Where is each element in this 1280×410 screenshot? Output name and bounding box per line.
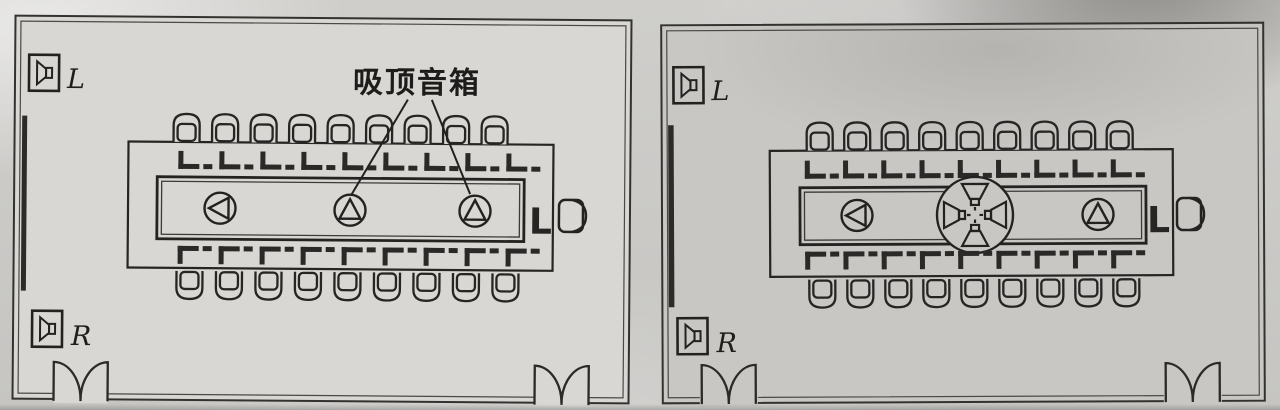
chair-icon	[289, 115, 315, 143]
ceiling-speaker-icon	[841, 200, 872, 231]
chair-icon	[212, 114, 238, 142]
chair-icon	[216, 271, 242, 299]
chair-icon	[413, 273, 439, 301]
ceiling-speaker-icon	[1082, 199, 1113, 230]
chair-row-bottom	[176, 271, 518, 302]
chair-icon	[961, 279, 987, 307]
chair-icon	[176, 271, 202, 299]
chair-icon	[492, 273, 518, 301]
chair-row-top	[807, 121, 1133, 150]
chair-icon	[844, 122, 870, 150]
chair-icon	[1037, 279, 1063, 307]
head-chair-icon	[1177, 198, 1204, 230]
chair-icon	[957, 122, 983, 150]
chair-row-top	[174, 114, 508, 145]
chair-icon	[251, 114, 277, 142]
chair-icon	[453, 273, 479, 301]
wall-speaker-label-right: R	[715, 328, 736, 359]
wall-speaker-icon	[29, 55, 59, 91]
chair-icon	[482, 116, 508, 144]
chair-icon	[994, 122, 1020, 150]
chair-icon	[923, 279, 949, 307]
chair-icon	[1075, 278, 1101, 306]
wall-speaker-label-left: L	[710, 76, 729, 107]
room-right: L R	[661, 23, 1265, 408]
chair-icon	[919, 122, 945, 150]
chair-icon	[328, 115, 354, 143]
chair-icon	[1069, 121, 1095, 149]
chair-icon	[1107, 121, 1133, 149]
ceiling-speaker-annotation: 吸顶音箱	[353, 65, 481, 101]
chair-icon	[255, 271, 281, 299]
wall-speaker-icon	[32, 311, 62, 347]
chair-icon	[1113, 278, 1139, 306]
wall-speaker-icon	[673, 67, 703, 103]
chair-icon	[882, 122, 908, 150]
chair-icon	[809, 280, 835, 308]
wall-speaker-label-left: L	[66, 64, 85, 95]
chair-row-bottom	[809, 278, 1139, 307]
chair-icon	[443, 116, 469, 144]
chair-icon	[405, 116, 431, 144]
chair-icon	[807, 123, 833, 151]
chair-icon	[174, 114, 200, 142]
chair-icon	[1032, 122, 1058, 150]
ceiling-speaker-icon	[459, 196, 490, 227]
chair-icon	[334, 272, 360, 300]
head-chair-icon	[559, 200, 586, 232]
head-seat-label: L	[1147, 200, 1170, 241]
floor-plan-svg: L R	[0, 0, 1280, 410]
chair-icon	[295, 272, 321, 300]
chair-icon	[374, 272, 400, 300]
chair-icon	[366, 115, 392, 143]
ceiling-speaker-icon	[204, 193, 235, 224]
chair-icon	[885, 279, 911, 307]
wall-speaker-icon	[677, 318, 707, 354]
wall-speaker-label-right: R	[70, 321, 92, 352]
ceiling-speaker-cluster-icon	[937, 177, 1013, 253]
head-seat-label: L	[529, 202, 552, 243]
ceiling-speaker-icon	[334, 195, 365, 226]
room-left: L R	[12, 16, 631, 408]
chair-icon	[999, 279, 1025, 307]
wall-window-bar	[668, 125, 674, 307]
scanned-floor-plan-figure: L R	[0, 0, 1280, 410]
chair-icon	[847, 279, 873, 307]
